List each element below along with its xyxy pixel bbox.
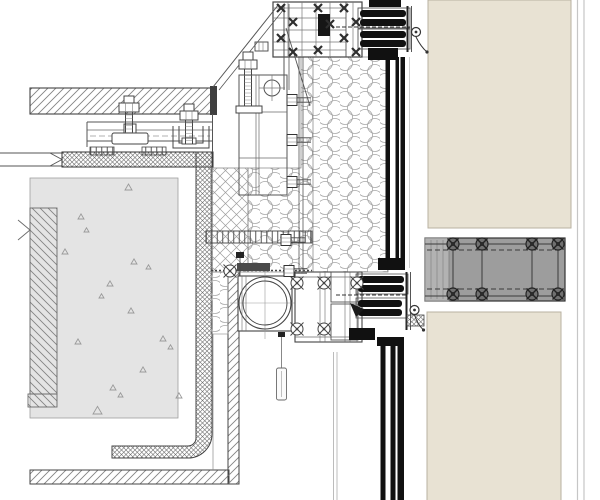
- jamb-hatch-band: [228, 272, 239, 484]
- screw-port-symbol: [291, 277, 304, 290]
- band-bolt: [447, 288, 459, 300]
- cladding-panel-bottom: [427, 312, 561, 500]
- glazing-gasket: [358, 276, 404, 283]
- glazing-gasket-cap: [368, 48, 398, 60]
- glazing-line: [401, 57, 406, 268]
- wall-hatch: [30, 208, 57, 394]
- detail-tag: [412, 28, 429, 54]
- glazing-gasket: [358, 300, 402, 307]
- screw-port-symbol: [351, 277, 364, 290]
- glazing-gasket: [358, 285, 404, 292]
- lock-nut: [182, 138, 196, 144]
- band-bolt: [552, 288, 564, 300]
- hold-down-clamp-base: [112, 133, 148, 144]
- glazing-line: [381, 346, 386, 500]
- curtain-wall-detail-drawing: [0, 0, 600, 500]
- glazing-gasket-cap: [369, 0, 401, 7]
- band-bolt: [476, 288, 488, 300]
- hex-bolt-vertical: [239, 52, 257, 106]
- serrated-shim: [90, 147, 114, 155]
- screw-port-symbol: [291, 323, 304, 336]
- band-bolt: [447, 238, 459, 250]
- glazing-line: [396, 57, 400, 268]
- sill-flashing: [62, 152, 213, 167]
- mini-bolt: [236, 252, 244, 258]
- wall-hatch-step: [28, 394, 57, 407]
- floor-hatch-band: [30, 470, 229, 484]
- screw-port-symbol: [318, 323, 331, 336]
- glazing-line: [391, 346, 396, 500]
- band-bolt: [526, 288, 538, 300]
- wall-break-mark: [18, 220, 30, 240]
- sill-break-mark: [50, 153, 62, 166]
- drawing-viewport: [0, 0, 600, 500]
- mineral-wool-strip: [211, 272, 228, 334]
- serrated-shim: [142, 147, 166, 155]
- seal-strip-dark: [237, 263, 270, 271]
- band-bolt: [526, 238, 538, 250]
- glazing-gasket-cap: [377, 337, 404, 346]
- glazing-gasket-cap: [378, 258, 405, 270]
- side-bolt: [255, 42, 268, 51]
- cord-anchor: [278, 332, 285, 337]
- band-bolt: [476, 238, 488, 250]
- glazing-gasket: [360, 19, 406, 26]
- cladding-panel-top: [428, 0, 571, 228]
- glazing-gasket: [360, 31, 406, 38]
- glazing-gasket: [360, 10, 406, 17]
- glazing-line: [398, 346, 405, 500]
- serrated-rail: [206, 231, 312, 243]
- beam-end-seal: [210, 86, 217, 115]
- center-mark: [259, 75, 285, 101]
- drawing-layers: [0, 0, 584, 500]
- glazing-gasket: [358, 309, 402, 316]
- band-bolt: [552, 238, 564, 250]
- rod-washer: [236, 106, 262, 113]
- glazing-gasket-cap: [349, 328, 375, 340]
- screw-port-symbol: [318, 277, 331, 290]
- glazing-line: [386, 57, 391, 268]
- glazing-gasket: [360, 40, 406, 47]
- screw-port-symbol: [224, 265, 237, 278]
